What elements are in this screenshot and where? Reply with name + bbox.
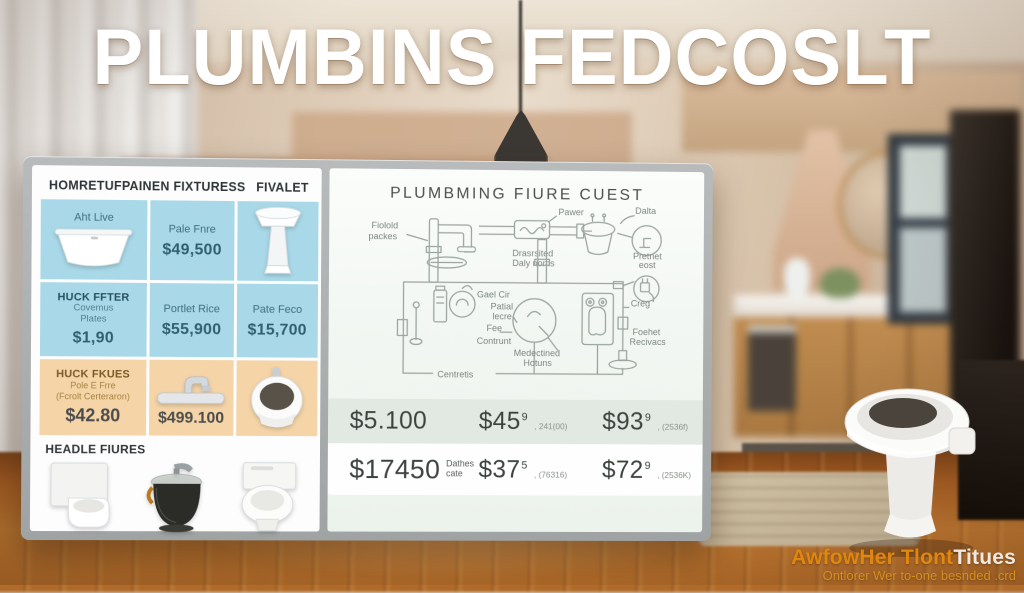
watermark-brand: AwfowHer TlontTitues [791,547,1016,569]
price-value: $729 [602,456,651,484]
price-value: $459 [479,407,528,435]
board-header: HOMRETUFPAINEN FIXTURESS FIVALET [41,171,313,202]
table-cell-huck-ffter: HUCK FFTER Covemus Plates $1,90 [40,282,147,357]
diagram-label: Medectined [514,348,560,358]
table-cell-faucet: $499.100 [149,360,234,436]
cell-price: $499.100 [158,409,224,427]
table-cell-pedestal-sink [237,201,319,281]
price-note: , (2536f) [657,422,688,432]
diagram-label: Hotuns [523,358,552,368]
toilet-photo [833,376,987,564]
price-note: , (76316) [534,469,567,479]
page-title: PLUMBINS FEDCOSLT [0,12,1024,102]
table-cell-pate-feco: Pate Feco $15,700 [236,284,318,358]
price-row-2: $17450 Dathes cate $375 , (76316) $729 ,… [328,443,703,496]
table-cell-bathtub: Aht Live [40,199,147,280]
faucet-image [152,368,230,406]
cell-label: Pale Fnre [169,223,216,235]
watermark: AwfowHer TlontTitues Ontlorer Wer to-one… [791,547,1016,583]
cell-note: Pole E Frre [70,380,115,391]
price-value: $17450 [349,454,440,485]
toilet-front-image [232,459,306,535]
price-row-1: $5.100 $459 , 241(00) $939 , (2536f) [328,399,703,445]
price-note: , (2536K) [657,470,691,480]
cell-price: $42.80 [65,405,120,426]
table-cell-price: Pale Fnre $49,500 [150,200,235,280]
cell-label: Pate Feco [253,303,303,315]
wall-toilet-image [45,459,123,533]
price-value: $5.100 [350,407,428,436]
cell-note: Plates [80,314,106,325]
diagram-label: Gael Cir [477,289,510,299]
price-value: $375 [478,455,527,483]
toilet-image [246,365,308,431]
diagram-label: Dalta [635,206,657,216]
table-cell-toilet [236,360,318,436]
black-pot-faucet-image [144,458,210,534]
diagram-label: Patial [491,301,514,311]
headle-fiures-section: HEADLE FIURES [39,435,311,534]
board-header-right: FIVALET [256,180,309,194]
plumbing-schematic: Fiolold packes Pawer Dalta [328,204,704,400]
diagram-label: Pawer [558,207,583,217]
diagram-label: Foehet [633,327,661,337]
cell-note: (Fcrolt Certeraron) [56,391,130,402]
fixtures-price-board: HOMRETUFPAINEN FIXTURESS FIVALET Aht Liv… [30,165,322,531]
price-table: Aht Live Pale Fnre $49,500 [39,199,312,436]
watermark-tagline: Ontlorer Wer to-one besnded .crd [791,569,1016,583]
diagram-title: PLUMBMING FIURE CUEST [329,184,704,205]
cell-label: Portlet Rice [164,303,220,315]
pedestal-sink-image [251,205,305,277]
cell-price: $1,90 [73,329,114,347]
diagram-label: Creg [631,299,650,309]
diagram-label: Recivacs [630,337,667,347]
price-value: $939 [602,408,651,436]
bathtub-image [51,225,137,270]
display-screen: HOMRETUFPAINEN FIXTURESS FIVALET Aht Liv… [21,156,713,541]
table-cell-portlet: Portlet Rice $55,900 [149,283,234,357]
diagram-label: packes [369,231,398,241]
diagram-label: Contrunt [477,336,512,346]
diagram-label: Fiolold [372,220,399,230]
fixture-image-row [41,458,309,534]
diagram-label: lecre [492,311,512,321]
board-header-left: HOMRETUFPAINEN FIXTURESS [49,178,246,194]
price-note: Dathes cate [446,460,474,480]
diagram-label: Fee [487,323,503,333]
cell-price: $15,700 [248,321,307,339]
cell-label: Aht Live [74,211,114,223]
plumbing-diagram-board: PLUMBMING FIURE CUEST Fiolold packes Paw… [327,168,704,532]
diagram-label: Centretis [437,369,473,379]
table-cell-huck-fkues: HUCK FKUES Pole E Frre (Fcrolt Certeraro… [39,359,146,435]
price-note: , 241(00) [534,421,567,431]
diagram-label: eost [639,260,656,270]
cell-title: HUCK FKUES [56,368,130,380]
section-title: HEADLE FIURES [45,442,309,457]
cell-price: $55,900 [162,320,222,338]
cell-price: $49,500 [162,241,222,259]
